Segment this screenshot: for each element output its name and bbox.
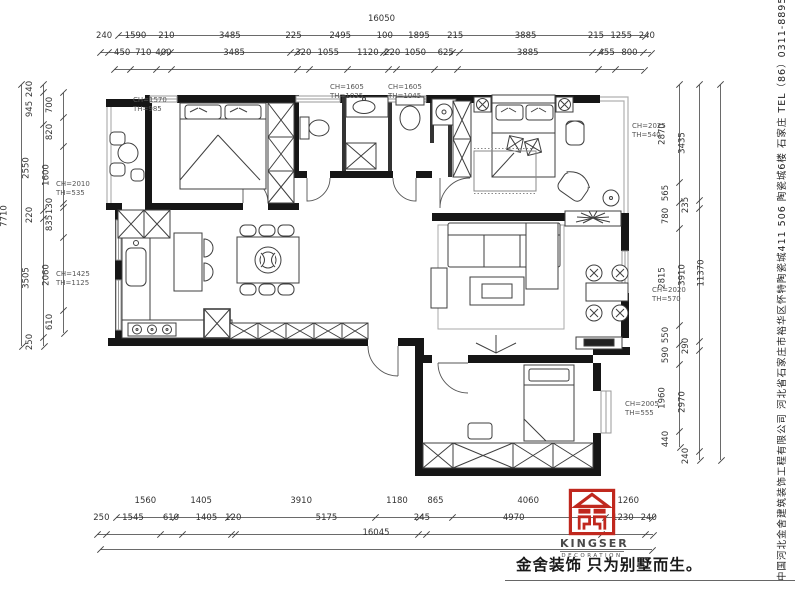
bedroom2 xyxy=(423,365,593,468)
dim-segment: 820 xyxy=(50,118,64,147)
dim-segment: 7710 xyxy=(8,85,22,346)
dim-segment: 1545 xyxy=(106,523,160,535)
dim-segment: 2970 xyxy=(686,351,700,452)
dim-segment: 240 xyxy=(645,523,653,535)
window-label: CH=1605TH=1045 xyxy=(388,83,422,102)
dim-segment: 590 xyxy=(666,345,680,365)
master-bedroom xyxy=(453,95,619,206)
dim-segment: 565 xyxy=(666,183,680,202)
kingser-emblem-icon xyxy=(568,486,616,538)
dim-segment: 250 xyxy=(97,523,106,535)
dim-segment: 1405 xyxy=(182,523,231,535)
company-info-vertical-text: 中国河北金舍建筑装饰工程有限公司 河北省石家庄市裕华区怀特陶瓷城411 506 … xyxy=(774,11,788,581)
window-label: CH=2020TH=570 xyxy=(652,286,686,305)
dim-segment: 320 xyxy=(297,58,309,70)
bottom-rule-line xyxy=(505,580,795,581)
window-label: CH=1425TH=1125 xyxy=(56,270,90,289)
dim-segment: 1120 xyxy=(347,58,388,70)
window-label: CH=2010TH=535 xyxy=(56,180,90,199)
slogan-text: 金舍装饰 只为别墅而生。 xyxy=(516,553,702,575)
dim-segment: 240 xyxy=(643,41,651,53)
dim-segment: 240 xyxy=(100,41,108,53)
dim-segment: 800 xyxy=(615,58,644,70)
dim-segment: 610 xyxy=(160,523,181,535)
dim-right-total: 11370 xyxy=(707,85,721,460)
dim-segment: 3435 xyxy=(686,85,700,201)
dim-segment: 250 xyxy=(30,338,44,346)
window-label: CH=1605TH=1035 xyxy=(330,83,364,102)
dim-segment: 450 xyxy=(114,58,130,70)
dim-segment: 780 xyxy=(666,203,680,230)
logo-name: KINGSER xyxy=(560,538,624,550)
dim-segment: 1055 xyxy=(309,58,347,70)
dim-left-inner: 70082016001308352060610 xyxy=(50,93,64,333)
floor-plan-sheet: 16050 2401590210348522524951001895215388… xyxy=(0,0,800,593)
dim-segment: 1180 xyxy=(375,506,419,518)
dim-segment: 440 xyxy=(666,432,680,447)
dim-segment: 710 xyxy=(130,58,156,70)
dim-segment: 11370 xyxy=(707,85,721,460)
dim-segment: 455 xyxy=(598,58,615,70)
planter-plant xyxy=(565,211,621,226)
dim-segment: 245 xyxy=(418,523,427,535)
dim-segment: 625 xyxy=(434,58,457,70)
dim-segment: 945 xyxy=(30,93,44,125)
dining-set xyxy=(237,225,299,295)
dim-segment: 3885 xyxy=(457,58,598,70)
dim-segment: 550 xyxy=(666,326,680,345)
dim-segment: 220 xyxy=(388,58,396,70)
bed-room1 xyxy=(180,103,294,203)
dim-segment: 3485 xyxy=(171,58,298,70)
living-room xyxy=(431,223,628,353)
dim-left-total: 7710 xyxy=(8,85,22,346)
dim-left-mid: 24094525502203505250 xyxy=(30,85,44,346)
dim-segment: 400 xyxy=(156,58,171,70)
dim-top-row3: 4507104003485320105511202201050625388545… xyxy=(114,58,644,70)
dim-segment: 3910 xyxy=(228,506,375,518)
dim-segment: 700 xyxy=(50,93,64,118)
dim-segment: 835 xyxy=(50,208,64,238)
balcony-table-set xyxy=(110,132,144,181)
window-label: CH=1570TH=985 xyxy=(133,96,167,115)
window-label: CH=2025TH=540 xyxy=(632,122,666,141)
kingser-logo: KINGSER DECORATION xyxy=(560,486,624,559)
window-label: CH=2005TH=555 xyxy=(625,400,659,419)
dim-segment: 610 xyxy=(50,311,64,333)
floor-plan-drawing xyxy=(100,85,660,478)
dim-segment: 240 xyxy=(686,452,700,460)
dim-segment: 1050 xyxy=(396,58,434,70)
dim-segment: 5175 xyxy=(235,523,417,535)
